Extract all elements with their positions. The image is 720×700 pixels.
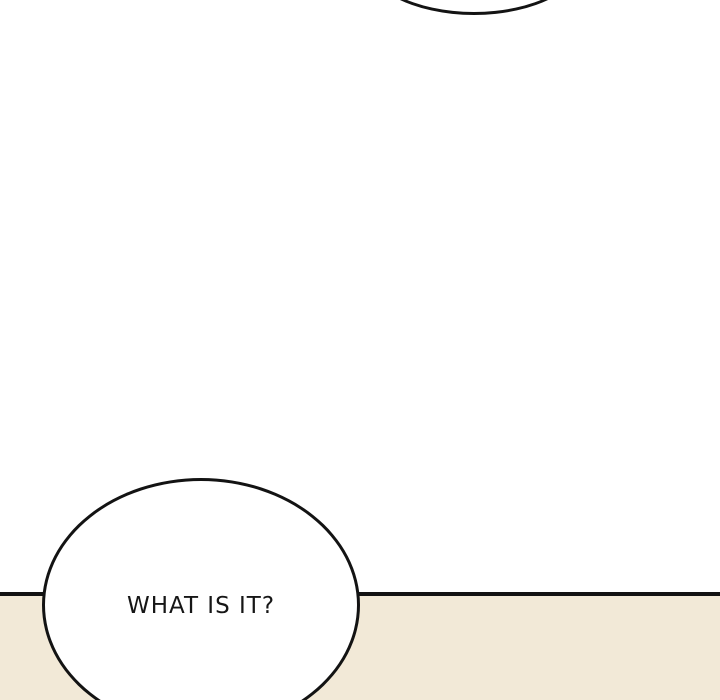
comic-panel: WHAT IS IT? bbox=[0, 0, 720, 700]
speech-bubble-text: WHAT IS IT? bbox=[127, 593, 275, 619]
speech-bubble: WHAT IS IT? bbox=[42, 478, 360, 700]
speech-bubble-partial-top bbox=[362, 0, 586, 15]
